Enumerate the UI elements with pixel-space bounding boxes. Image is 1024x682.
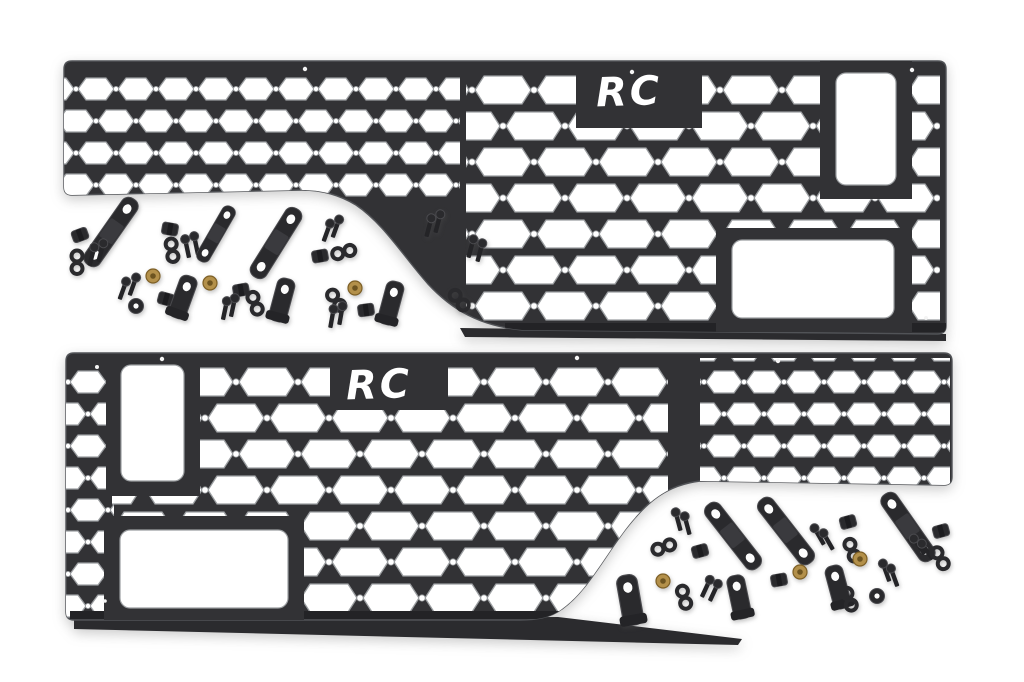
top-molle-panel: RC xyxy=(64,61,946,341)
mount-hole xyxy=(776,359,780,363)
hardware-kit-lower-right xyxy=(612,489,951,627)
hardware-block xyxy=(311,249,329,264)
hardware-lbracket xyxy=(723,573,756,621)
hardware-washer8 xyxy=(246,290,264,316)
mount-hole xyxy=(924,316,928,320)
hardware-block xyxy=(932,523,951,539)
molle-grid-small-right-bottom xyxy=(700,358,950,488)
hardware-lbracket xyxy=(265,276,300,325)
hardware-washer8 xyxy=(929,545,950,571)
accessory-cutout-large-top xyxy=(732,240,894,318)
bottom-molle-panel: RC xyxy=(64,353,952,645)
hardware-brass xyxy=(793,565,807,579)
hardware-bolt xyxy=(326,304,339,329)
hardware-brass xyxy=(853,552,867,566)
hardware-strap xyxy=(754,494,817,568)
hardware-block xyxy=(839,514,858,530)
accessory-cutout-large-bottom xyxy=(120,530,288,608)
hardware-strap xyxy=(194,203,237,264)
hardware-brass xyxy=(656,574,670,588)
hardware-roundwasher xyxy=(870,589,885,604)
hardware-strap xyxy=(247,204,305,281)
hardware-washer8 xyxy=(165,238,179,263)
hardware-strap xyxy=(701,499,764,573)
hardware-bolt xyxy=(335,301,348,326)
hardware-lbracket xyxy=(612,573,648,628)
accessory-cutout-vertical-top xyxy=(836,73,896,185)
mount-hole xyxy=(910,68,914,72)
hardware-washer8 xyxy=(676,584,693,610)
hardware-lbracket xyxy=(374,279,409,328)
hardware-washer8 xyxy=(651,538,677,556)
hardware-brass xyxy=(203,276,217,290)
hardware-bolt xyxy=(115,276,131,301)
accessory-cutout-vertical-bottom xyxy=(121,365,184,481)
product-photo: RC RC xyxy=(0,0,1024,682)
mount-hole xyxy=(103,599,107,603)
hardware-block xyxy=(357,303,375,317)
hardware-bolt xyxy=(679,511,694,536)
rc-logo-bottom: RC xyxy=(345,361,413,409)
hardware-block xyxy=(70,227,89,244)
hardware-roundwasher xyxy=(129,299,144,314)
hardware-brass xyxy=(146,269,160,283)
mount-hole xyxy=(160,357,164,361)
hardware-washer8 xyxy=(331,244,357,261)
rc-logo-top: RC xyxy=(595,68,663,116)
hardware-block xyxy=(161,222,179,237)
mount-hole xyxy=(575,356,579,360)
mount-hole xyxy=(95,365,99,369)
hardware-washer8 xyxy=(72,251,83,275)
hardware-brass xyxy=(348,281,362,295)
hardware-block xyxy=(770,573,788,588)
molle-grid-small-top xyxy=(64,72,460,198)
hardware-block xyxy=(691,543,710,559)
mount-hole xyxy=(303,67,307,71)
